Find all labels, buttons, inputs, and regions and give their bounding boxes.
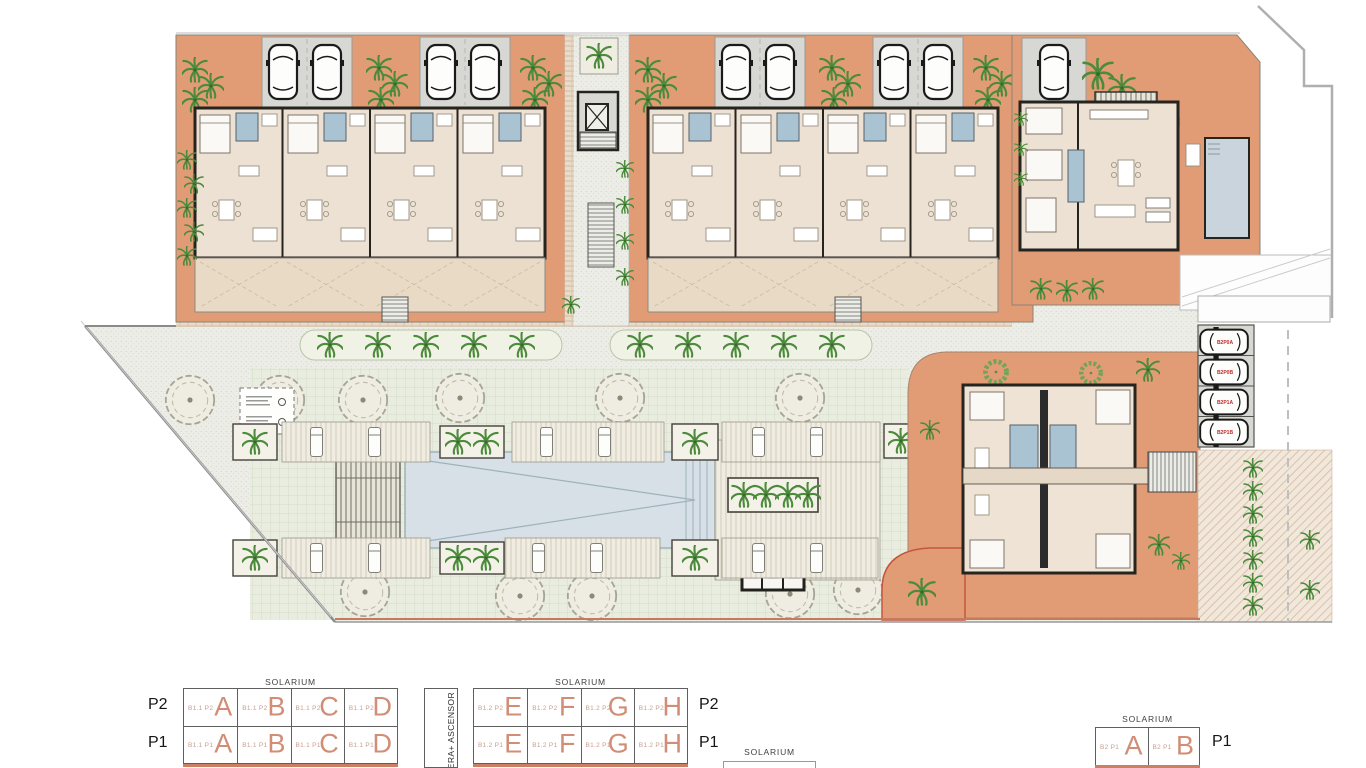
unit-code: B1.2 P1 <box>478 742 503 749</box>
solarium-title: SOLARIUM <box>473 677 688 687</box>
unit-code: B1.1 P2 <box>242 704 267 711</box>
unit-letter: F <box>559 730 576 757</box>
legend-cell-b11-p1-c: B1.1 P1C <box>291 726 344 763</box>
legend-cell-b12-p1-g: B1.2 P1G <box>581 726 634 763</box>
stairs-icon <box>580 132 616 148</box>
unit-code: B1.1 P1 <box>242 742 267 749</box>
stairs-icon <box>1148 452 1196 492</box>
unit-letter: G <box>608 693 629 720</box>
sun-lounger-icon <box>1146 212 1170 222</box>
unit-letter: E <box>504 730 522 757</box>
legend-cell-b12-p2-h: B1.2 P2H <box>634 689 687 726</box>
unit-code: B2 P1 <box>1100 743 1119 750</box>
unit-letter: A <box>214 730 232 757</box>
solarium-title: SOLARIUM <box>183 677 398 687</box>
unit-letter: D <box>373 730 393 757</box>
level-label-p1: P1 <box>1212 733 1232 751</box>
level-label-p1: P1 <box>148 734 168 752</box>
car-icon <box>1037 45 1071 99</box>
unit-code: B1.1 P1 <box>296 742 321 749</box>
legend-cell-b12-p1-f: B1.2 P1F <box>527 726 580 763</box>
unit-letter: B <box>267 730 285 757</box>
unit-letter: A <box>214 693 232 720</box>
apartment-building-b11 <box>176 35 580 322</box>
unit-letter: B <box>1176 732 1194 759</box>
apartment-building-b12 <box>629 35 1033 322</box>
unit-letter: D <box>373 693 393 720</box>
unit-code: B1.1 P1 <box>188 742 213 749</box>
unit-letter: C <box>319 693 339 720</box>
parking-stall-label: B2P1B <box>1217 430 1234 436</box>
stair-elevator-legend: ESCALERA+ ASCENSOR <box>424 688 458 768</box>
solarium-table-b11: B1.1 P2A B1.1 P2B B1.1 P2C B1.1 P2D B1.1… <box>183 688 398 764</box>
unit-letter: C <box>319 730 339 757</box>
unit-letter: F <box>559 693 576 720</box>
legend-cell-b12-p1-e: B1.2 P1E <box>474 726 527 763</box>
legend-cell-b11-p1-b: B1.1 P1B <box>237 726 290 763</box>
site-plan: B2P0A B2P0B B2P1A B2P1B <box>0 0 1366 768</box>
legend-cell-b12-p2-f: B1.2 P2F <box>527 689 580 726</box>
central-core <box>562 35 634 326</box>
unit-letter: B <box>267 693 285 720</box>
level-label-p2: P2 <box>148 696 168 714</box>
unit-letter: A <box>1124 732 1142 759</box>
legend-cell-b11-p2-a: B1.1 P2A <box>184 689 237 726</box>
parking-stall-label: B2P1A <box>1217 400 1234 406</box>
unit-code: B1.2 P2 <box>639 704 664 711</box>
p0-row-edge <box>473 764 688 767</box>
p0-row-edge <box>183 764 398 767</box>
unit-code: B1.2 P1 <box>639 742 664 749</box>
unit-code: B1.1 P2 <box>296 704 321 711</box>
legend-cell-b11-p1-d: B1.1 P1D <box>344 726 397 763</box>
solarium-title: SOLARIUM <box>1095 714 1200 724</box>
level-label-p1: P1 <box>699 734 719 752</box>
unit-code: B1.2 P2 <box>478 704 503 711</box>
pool <box>405 452 715 548</box>
legend-cell-b11-p1-a: B1.1 P1A <box>184 726 237 763</box>
unit-code: B2 P1 <box>1153 743 1172 750</box>
palm-planter <box>728 478 821 512</box>
unit-letter: E <box>504 693 522 720</box>
solarium-table-b12: B1.2 P2E B1.2 P2F B1.2 P2G B1.2 P2H B1.2… <box>473 688 688 764</box>
unit-code: B1.1 P2 <box>349 704 374 711</box>
site-plan-page: B2P0A B2P0B B2P1A B2P1B SOLARIUM P2 P1 B… <box>0 0 1366 768</box>
legend-cell-b2-p1-a: B2 P1A <box>1096 728 1148 765</box>
stair-elevator-label: ESCALERA+ ASCENSOR <box>446 692 456 768</box>
legend-cell-b11-p2-c: B1.1 P2C <box>291 689 344 726</box>
unit-code: B1.1 P2 <box>188 704 213 711</box>
legend-cell-b12-p2-g: B1.2 P2G <box>581 689 634 726</box>
unit-code: B1.2 P2 <box>532 704 557 711</box>
solarium-stub-box <box>723 761 816 768</box>
sun-lounger-icon <box>1146 198 1170 208</box>
parking-row-b2: B2P0A B2P0B B2P1A B2P1B <box>1198 296 1330 447</box>
parking-stall-label: B2P0B <box>1217 370 1234 376</box>
private-pool <box>1205 138 1249 238</box>
unit-letter: H <box>663 730 683 757</box>
outdoor-table <box>1186 144 1200 166</box>
unit-letter: H <box>663 693 683 720</box>
stairs-icon <box>588 203 614 267</box>
planting-bed <box>882 548 965 620</box>
parking-stall-label: B2P0A <box>1217 340 1234 346</box>
unit-letter: G <box>608 730 629 757</box>
legend-cell-b12-p1-h: B1.2 P1H <box>634 726 687 763</box>
solarium-table-b2: B2 P1A B2 P1B <box>1095 727 1200 766</box>
level-label-p2: P2 <box>699 696 719 714</box>
unit-code: B1.2 P1 <box>532 742 557 749</box>
legend-cell-b2-p1-b: B2 P1B <box>1148 728 1200 765</box>
solarium-title: SOLARIUM <box>723 747 816 757</box>
unit-code: B1.1 P1 <box>349 742 374 749</box>
legend-cell-b12-p2-e: B1.2 P2E <box>474 689 527 726</box>
legend-cell-b11-p2-d: B1.1 P2D <box>344 689 397 726</box>
legend-cell-b11-p2-b: B1.1 P2B <box>237 689 290 726</box>
